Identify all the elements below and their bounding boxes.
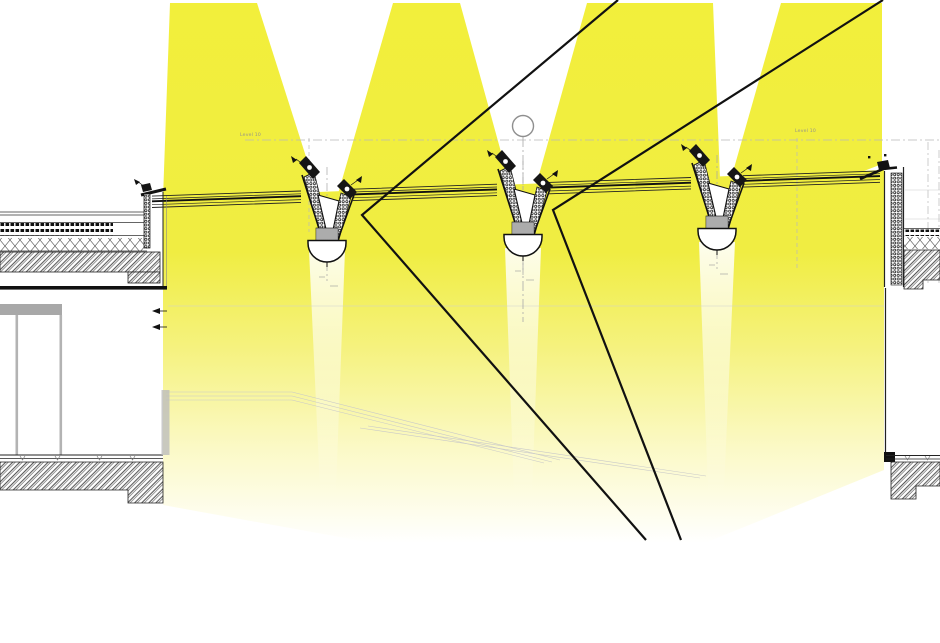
level-marker-icon (152, 324, 160, 330)
left-roof-buildup (0, 179, 167, 290)
window-mullion (60, 315, 63, 455)
gravel-layer (0, 223, 113, 236)
concrete-slab (0, 252, 160, 272)
level-label-right: Level 10 (795, 128, 816, 134)
floor-slab-left (0, 462, 163, 503)
gravel-layer (904, 230, 940, 237)
ceiling-line (0, 286, 167, 290)
right-lower-slab (884, 452, 940, 499)
insulation-layer (904, 237, 940, 249)
window-mullion (16, 315, 19, 455)
daylight-section-diagram: Level 10 Level 10 (0, 0, 940, 643)
insulation-layer (0, 238, 147, 251)
grid-bubble-icon (513, 116, 534, 137)
daylight-beams (163, 3, 884, 556)
level-marker-icon (152, 308, 160, 314)
upstand-insulation (144, 194, 150, 248)
screed-marks (905, 456, 930, 460)
screed-marks (20, 456, 135, 460)
interior-wall-strip (162, 390, 170, 455)
level-label-left: Level 10 (240, 132, 261, 138)
slab-downstand (128, 272, 160, 283)
left-lower-wall (0, 304, 170, 503)
floor-slab-right (891, 462, 940, 499)
section-canvas: Level 10 Level 10 (0, 0, 940, 643)
fixing-arrow-icon (134, 179, 140, 185)
parapet-insulation (891, 173, 902, 285)
window-head-band (0, 304, 62, 315)
right-roof-slab (904, 250, 940, 289)
